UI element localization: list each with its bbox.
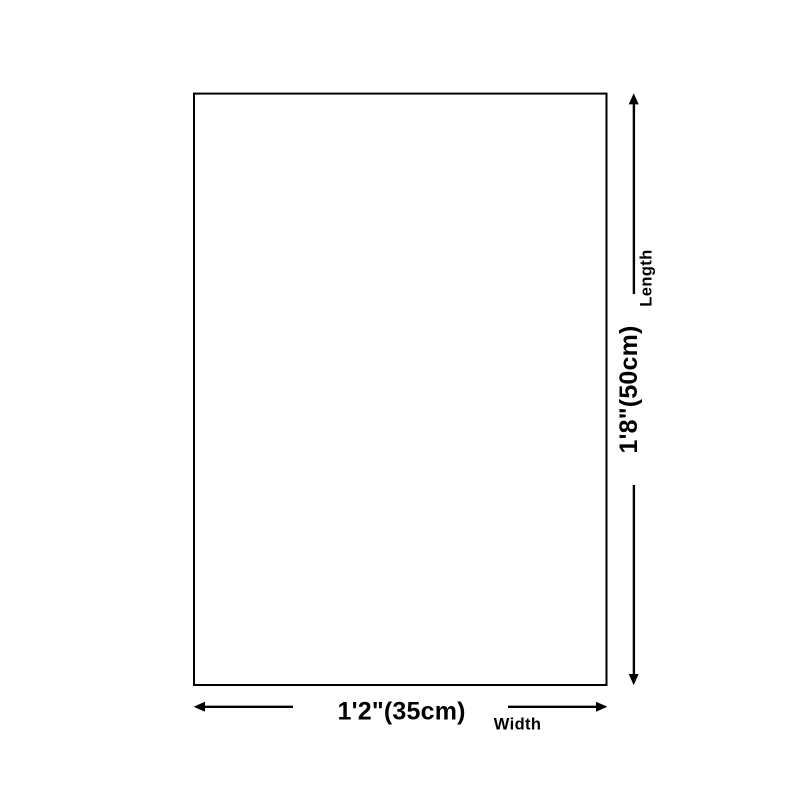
svg-text:Width: Width bbox=[494, 716, 542, 734]
svg-text:1'2"(35cm): 1'2"(35cm) bbox=[337, 698, 465, 726]
svg-text:1'8"(50cm): 1'8"(50cm) bbox=[615, 325, 643, 453]
svg-text:Length: Length bbox=[638, 249, 656, 306]
